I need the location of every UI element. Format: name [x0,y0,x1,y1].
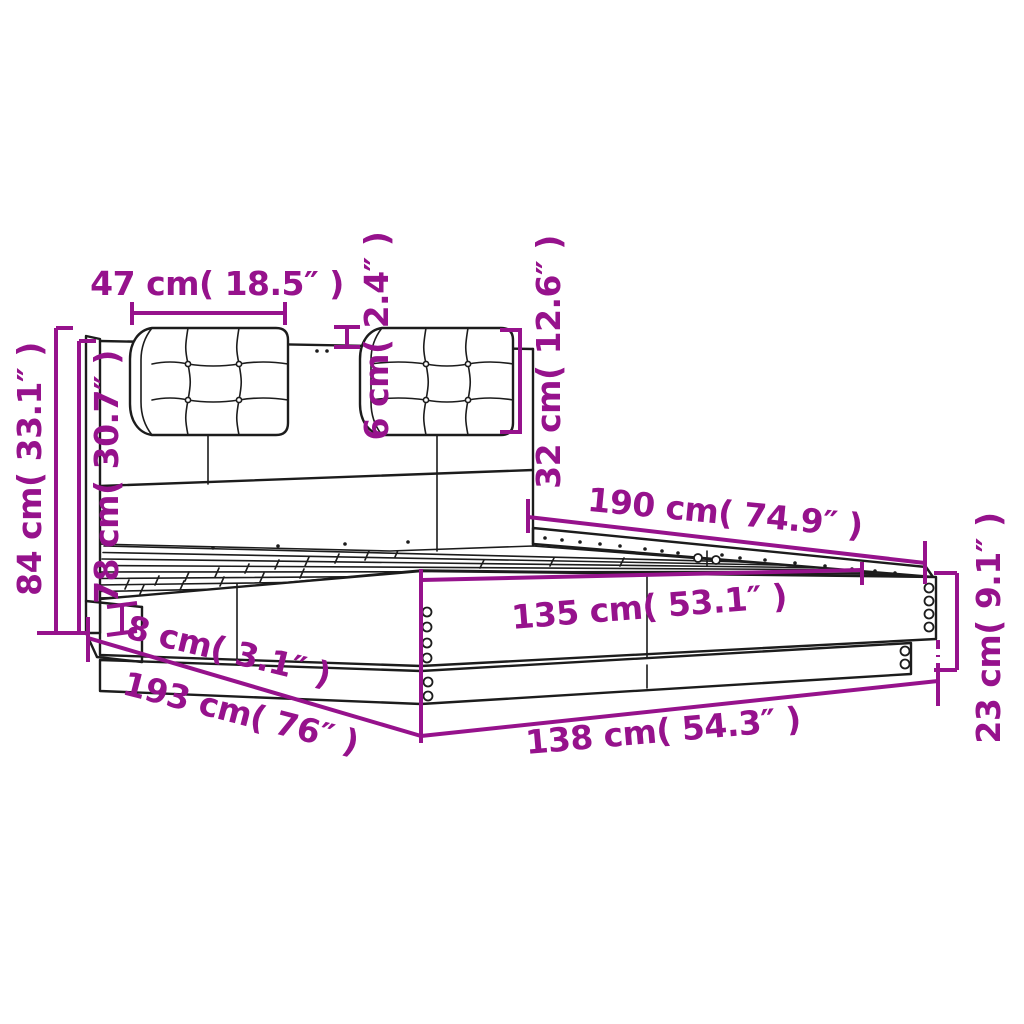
dim-label-cushion-thickness: 6 cm( 2.4″ ) [357,232,396,441]
dim-label-frame-height: 23 cm( 9.1″ ) [969,512,1008,743]
dim-frame-height: 23 cm( 9.1″ ) [934,512,1008,743]
dim-label-inner-length: 190 cm( 74.9″ ) [586,480,865,545]
dim-cushion-thickness: 6 cm( 2.4″ ) [334,232,396,441]
dim-headboard-height: 78 cm( 30.7″ ) [79,341,126,633]
bed-dimension-diagram: 47 cm( 18.5″ ) 6 cm( 2.4″ ) 32 cm( 12.6″… [0,0,1024,1024]
cushion-left [130,328,288,435]
dim-total-height: 84 cm( 33.1″ ) [10,328,86,633]
dim-label-headboard-height: 78 cm( 30.7″ ) [87,350,126,604]
dim-cushion-width: 47 cm( 18.5″ ) [90,264,344,325]
dim-label-total-height: 84 cm( 33.1″ ) [10,342,49,596]
dimension-diagram-page: 47 cm( 18.5″ ) 6 cm( 2.4″ ) 32 cm( 12.6″… [0,0,1024,1024]
dim-label-cushion-width: 47 cm( 18.5″ ) [90,264,344,303]
dim-label-cushion-height: 32 cm( 12.6″ ) [529,235,568,489]
